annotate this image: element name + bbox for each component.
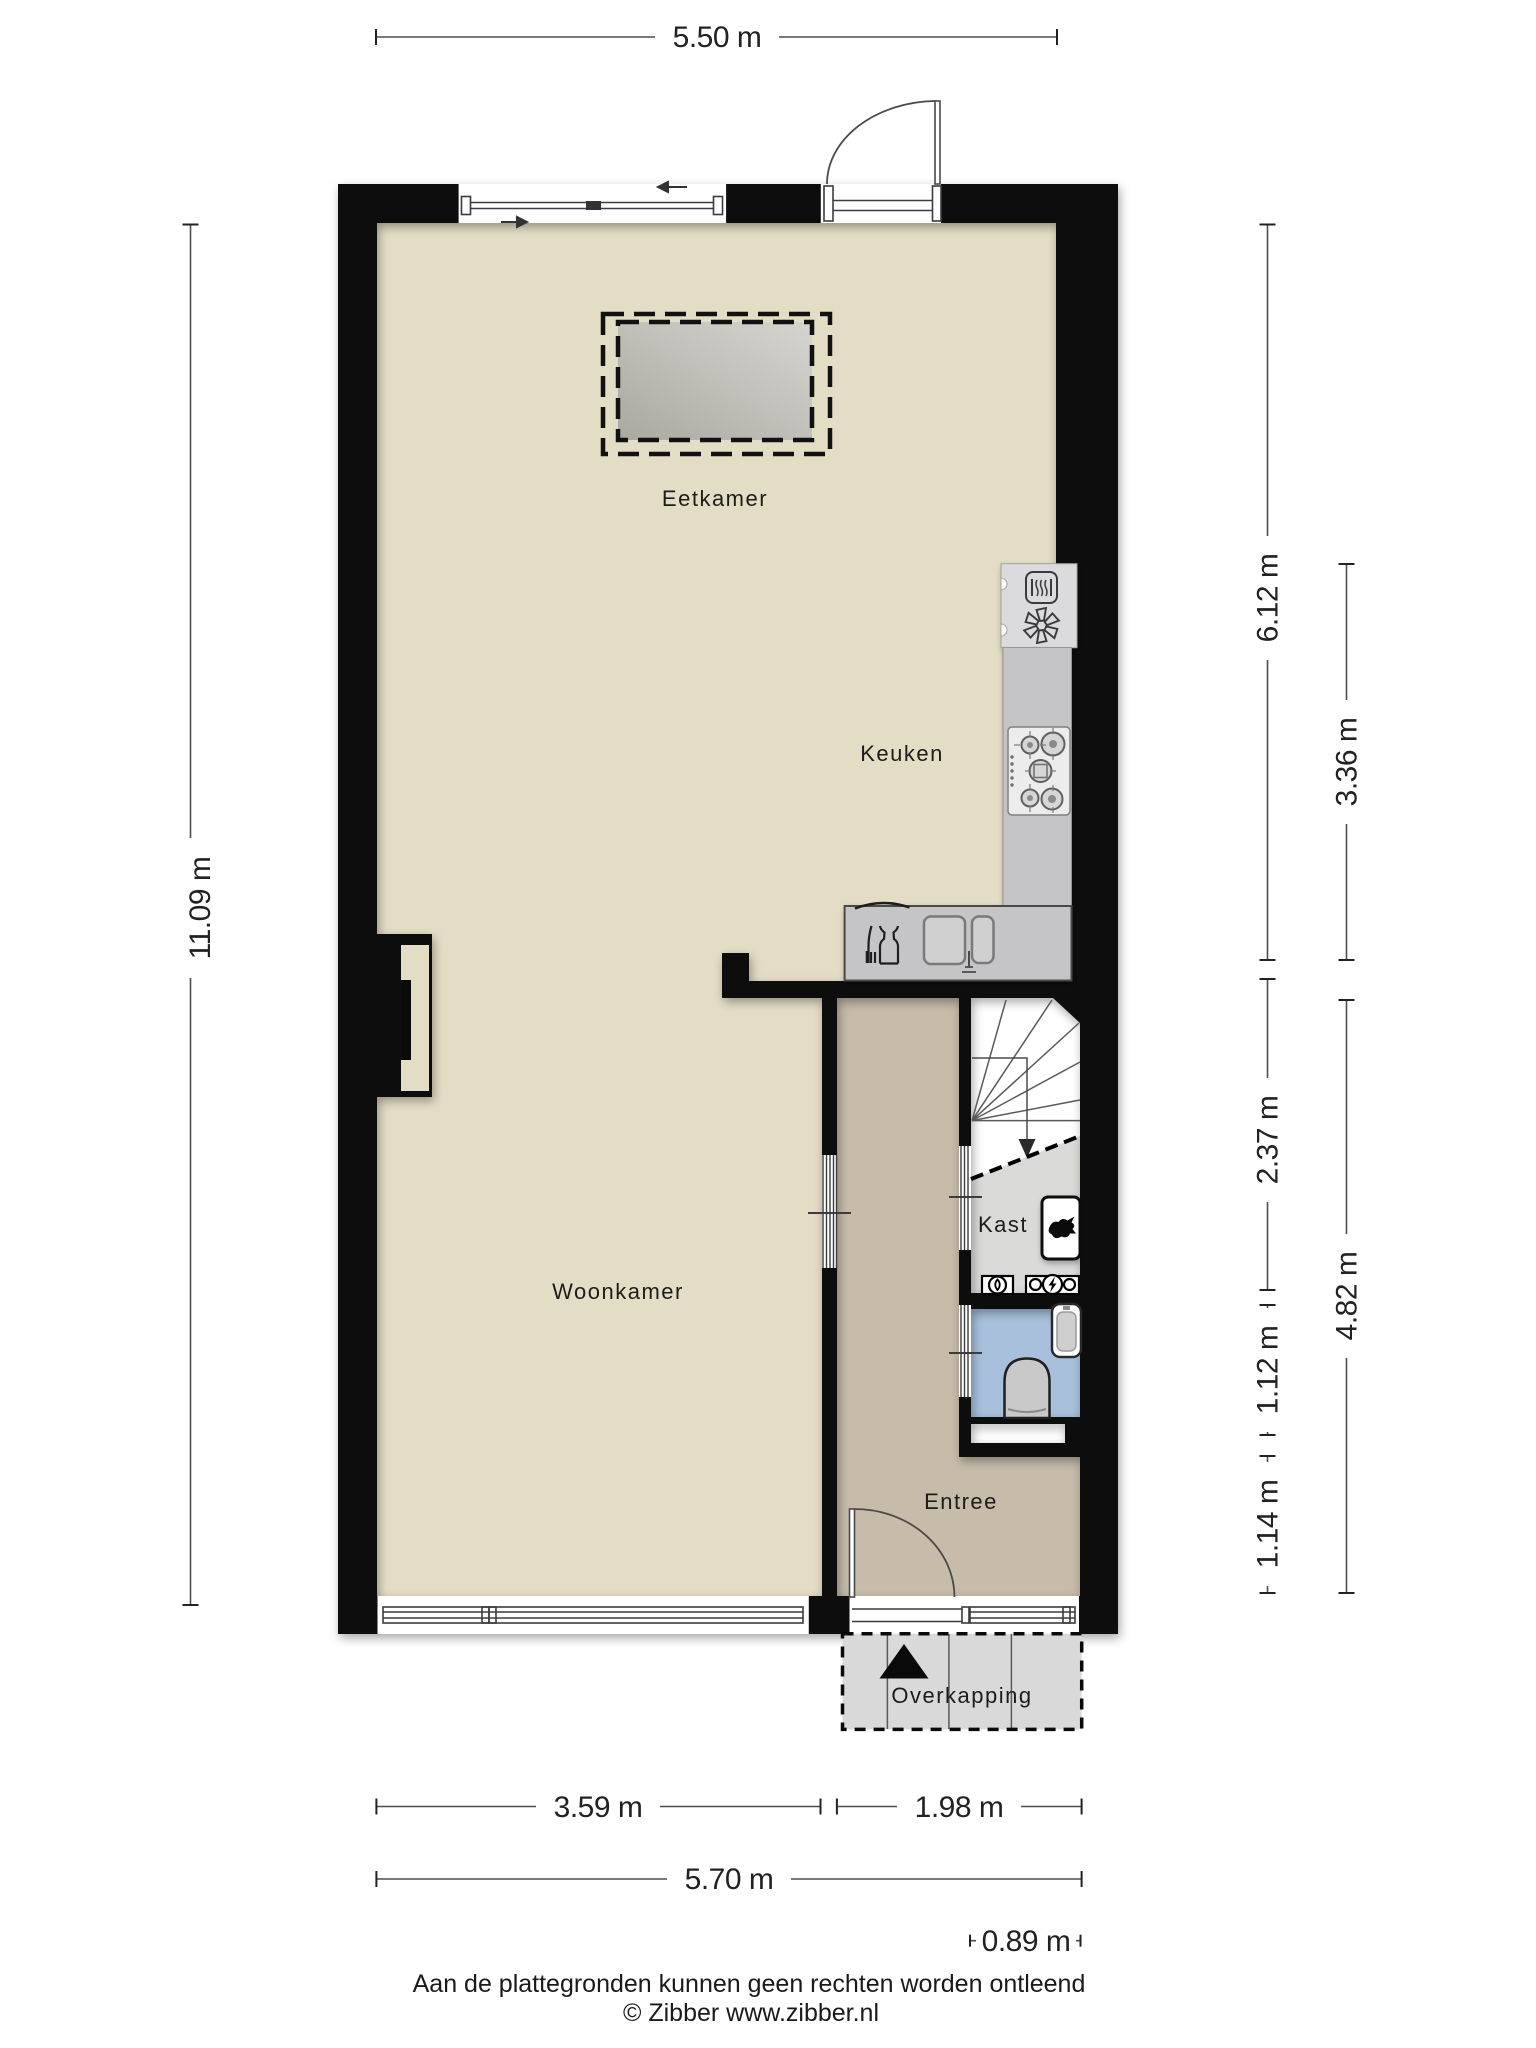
svg-text:1.12 m: 1.12 m (1252, 1326, 1285, 1415)
svg-text:4.82 m: 4.82 m (1331, 1252, 1364, 1341)
svg-text:1.14 m: 1.14 m (1252, 1480, 1285, 1569)
svg-text:5.50 m: 5.50 m (673, 21, 762, 54)
svg-text:Eetkamer: Eetkamer (662, 486, 768, 511)
svg-text:3.59 m: 3.59 m (554, 1791, 643, 1824)
svg-text:Kast: Kast (978, 1212, 1028, 1237)
svg-text:0.89 m: 0.89 m (982, 1925, 1071, 1958)
svg-text:11.09 m: 11.09 m (184, 857, 217, 960)
svg-text:Overkapping: Overkapping (891, 1683, 1032, 1708)
svg-text:Keuken: Keuken (860, 741, 944, 766)
svg-text:3.36 m: 3.36 m (1331, 718, 1364, 807)
svg-text:Entree: Entree (924, 1489, 998, 1514)
svg-text:1.98 m: 1.98 m (915, 1791, 1004, 1824)
svg-text:Woonkamer: Woonkamer (552, 1279, 684, 1304)
svg-text:© Zibber www.zibber.nl: © Zibber www.zibber.nl (623, 1999, 879, 2027)
svg-text:2.37 m: 2.37 m (1252, 1096, 1285, 1185)
svg-text:5.70 m: 5.70 m (685, 1863, 774, 1896)
svg-text:Aan de plattegronden kunnen ge: Aan de plattegronden kunnen geen rechten… (413, 1970, 1086, 1998)
svg-text:6.12 m: 6.12 m (1252, 554, 1285, 643)
